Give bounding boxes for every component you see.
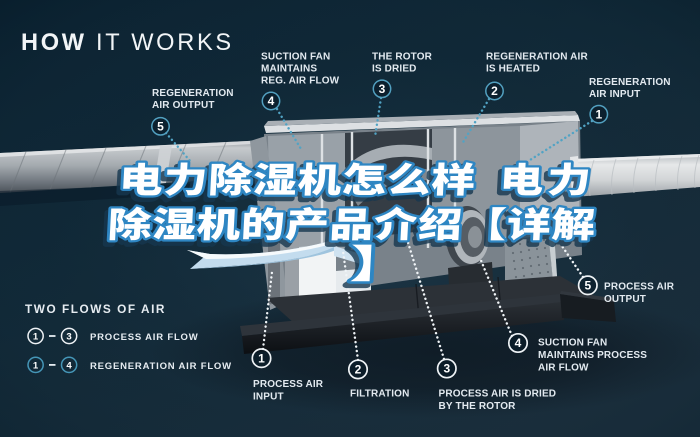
svg-text:3: 3 <box>443 362 450 376</box>
svg-text:FILTRATION: FILTRATION <box>350 389 409 400</box>
svg-text:1: 1 <box>33 360 39 371</box>
svg-text:PROCESS AIR: PROCESS AIR <box>253 379 324 390</box>
svg-text:REGENERATION: REGENERATION <box>589 77 671 88</box>
svg-text:OUTPUT: OUTPUT <box>604 294 646 305</box>
svg-text:SUCTION FAN: SUCTION FAN <box>538 338 607 349</box>
svg-text:2: 2 <box>355 363 362 377</box>
svg-text:BY THE ROTOR: BY THE ROTOR <box>439 401 517 412</box>
svg-text:4: 4 <box>515 336 522 350</box>
svg-text:REGENERATION AIR: REGENERATION AIR <box>486 52 588 63</box>
svg-text:4: 4 <box>268 94 275 108</box>
svg-text:INPUT: INPUT <box>253 392 284 403</box>
svg-text:5: 5 <box>157 119 164 133</box>
svg-text:AIR FLOW: AIR FLOW <box>538 363 589 374</box>
svg-text:5: 5 <box>584 278 591 292</box>
svg-text:SUCTION FAN: SUCTION FAN <box>261 52 330 63</box>
svg-text:PROCESS AIR IS DRIED: PROCESS AIR IS DRIED <box>439 389 557 400</box>
svg-text:AIR INPUT: AIR INPUT <box>589 89 640 100</box>
svg-text:4: 4 <box>66 360 72 371</box>
svg-text:THE ROTOR: THE ROTOR <box>372 52 433 63</box>
svg-text:2: 2 <box>491 84 498 98</box>
svg-text:AIR OUTPUT: AIR OUTPUT <box>152 100 215 111</box>
svg-text:IS DRIED: IS DRIED <box>372 64 417 75</box>
svg-text:1: 1 <box>595 107 602 121</box>
svg-text:REG. AIR FLOW: REG. AIR FLOW <box>261 76 340 87</box>
svg-text:3: 3 <box>379 82 386 96</box>
svg-text:MAINTAINS: MAINTAINS <box>261 64 317 75</box>
svg-text:1: 1 <box>258 351 265 365</box>
svg-text:REGENERATION: REGENERATION <box>152 88 234 99</box>
svg-text:HOW IT WORKS: HOW IT WORKS <box>21 30 234 56</box>
svg-text:REGENERATION AIR FLOW: REGENERATION AIR FLOW <box>90 361 232 372</box>
svg-text:MAINTAINS PROCESS: MAINTAINS PROCESS <box>538 350 647 361</box>
svg-text:1: 1 <box>33 331 39 342</box>
svg-text:IS HEATED: IS HEATED <box>486 64 540 75</box>
svg-text:PROCESS AIR FLOW: PROCESS AIR FLOW <box>90 332 199 343</box>
svg-text:PROCESS AIR: PROCESS AIR <box>604 282 675 293</box>
svg-text:3: 3 <box>66 331 71 342</box>
svg-text:TWO FLOWS OF AIR: TWO FLOWS OF AIR <box>25 302 166 316</box>
